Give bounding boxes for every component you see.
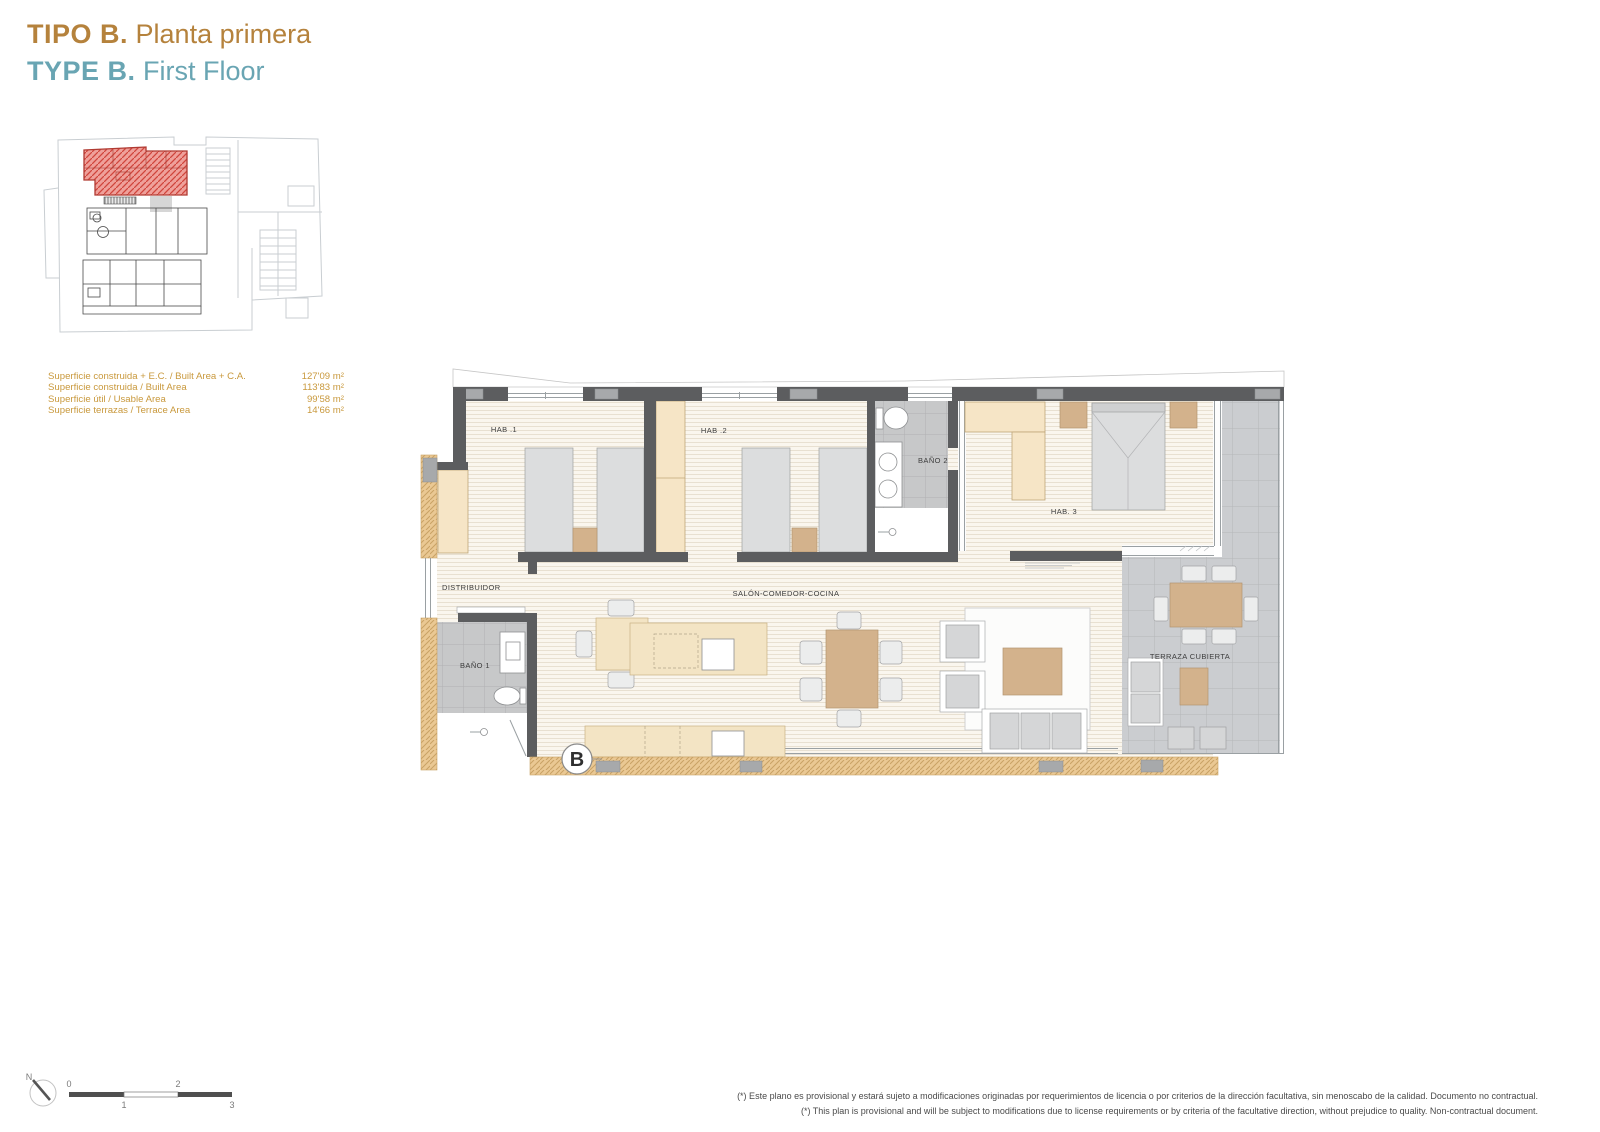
area-label: Superficie útil / Usable Area [48,394,166,405]
area-row: Superficie útil / Usable Area 99'58 m² [48,394,344,405]
kitchen-counter [585,726,785,757]
area-row: Superficie construida / Built Area 113'8… [48,382,344,393]
disclaimer-es: (*) Este plano es provisional y estará s… [438,1089,1538,1104]
disclaimer: (*) Este plano es provisional y estará s… [438,1089,1538,1118]
bathroom-2: BAÑO 2 [875,401,948,552]
title-english: TYPE B. First Floor [27,53,311,90]
key-plan [38,128,338,338]
roof-outline [453,369,1284,387]
area-row: Superficie construida + E.C. / Built Are… [48,371,344,382]
area-label: Superficie terrazas / Terrace Area [48,405,190,416]
disclaimer-en: (*) This plan is provisional and will be… [438,1104,1538,1119]
scale-tick-2: 2 [175,1079,180,1089]
area-value: 113'83 m² [302,382,344,393]
scale-tick-1: 1 [121,1100,126,1110]
page-title: TIPO B. Planta primera TYPE B. First Flo… [27,16,311,90]
room-label-hab3: HAB. 3 [1051,507,1077,516]
page: TIPO B. Planta primera TYPE B. First Flo… [0,0,1600,1132]
area-row: Superficie terrazas / Terrace Area 14'66… [48,405,344,416]
floor-plan: TERRAZA CUBIERTA HAB .1 HAB .2 [400,350,1290,780]
title-en-floor: First Floor [143,56,265,86]
title-en-type: TYPE B. [27,56,136,86]
scale-bar: N 0 2 1 3 [10,1040,250,1120]
bathroom-1: BAÑO 1 [437,607,527,757]
highlighted-unit [84,147,187,195]
room-label-bano1: BAÑO 1 [460,661,490,670]
area-label: Superficie construida / Built Area [48,382,187,393]
area-value: 99'58 m² [307,394,344,405]
scale-segments [69,1092,232,1097]
room-label-distribuidor: DISTRIBUIDOR [442,583,501,592]
room-label-bano2: BAÑO 2 [918,456,948,465]
title-spanish: TIPO B. Planta primera [27,16,311,53]
title-es-type: TIPO B. [27,19,128,49]
north-label: N [26,1072,33,1082]
area-label: Superficie construida + E.C. / Built Are… [48,371,246,382]
scale-tick-0: 0 [66,1079,71,1089]
area-value: 14'66 m² [307,405,344,416]
surface-areas: Superficie construida + E.C. / Built Are… [48,371,344,417]
section-marker-letter: B [570,749,584,771]
room-label-hab1: HAB .1 [491,425,517,434]
other-units [83,196,207,314]
north-arrow: N [26,1072,56,1106]
room-label-salon: SALÓN-COMEDOR-COCINA [733,589,840,598]
scale-tick-3: 3 [229,1100,234,1110]
area-value: 127'09 m² [302,371,344,382]
title-es-floor: Planta primera [136,19,312,49]
room-label-hab2: HAB .2 [701,426,727,435]
room-label-terraza: TERRAZA CUBIERTA [1150,652,1230,661]
